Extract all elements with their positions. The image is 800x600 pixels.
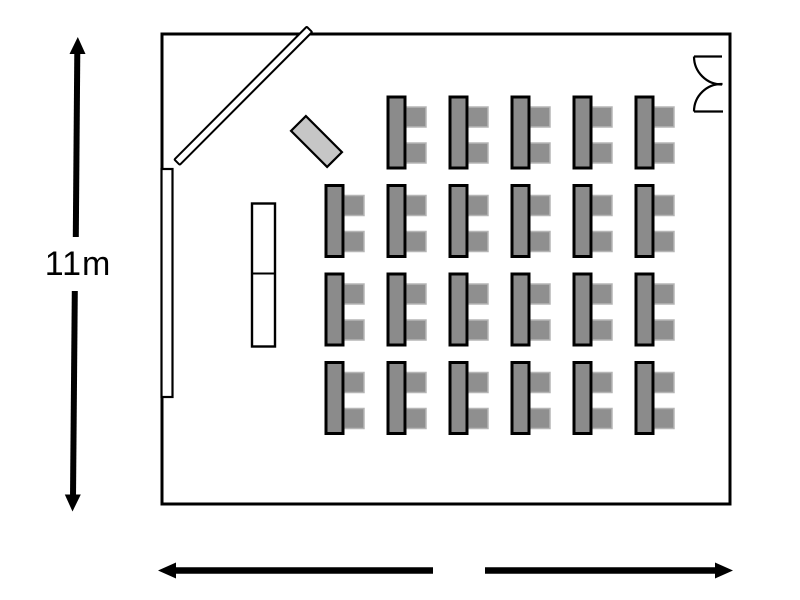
arrow-shaft-upper xyxy=(76,51,78,237)
chair xyxy=(344,409,364,429)
lectern xyxy=(252,204,275,347)
chair xyxy=(406,409,426,429)
desk xyxy=(636,363,653,434)
chair xyxy=(344,373,364,393)
chair xyxy=(468,232,488,252)
floor-plan-canvas: 11m xyxy=(0,0,800,600)
chair xyxy=(344,232,364,252)
desk xyxy=(574,274,591,345)
chair xyxy=(530,232,550,252)
chair xyxy=(406,320,426,340)
desk xyxy=(388,274,405,345)
arrow-down-head xyxy=(65,495,81,512)
desk xyxy=(326,186,343,257)
desk xyxy=(512,274,529,345)
chair xyxy=(344,320,364,340)
chair xyxy=(530,143,550,163)
chair xyxy=(530,284,550,304)
chair xyxy=(344,284,364,304)
chair xyxy=(654,232,674,252)
desk xyxy=(450,186,467,257)
chair xyxy=(654,284,674,304)
desk xyxy=(512,186,529,257)
desk xyxy=(388,97,405,168)
lectern-body xyxy=(252,204,275,347)
chair xyxy=(592,373,612,393)
chair xyxy=(592,284,612,304)
chair xyxy=(654,409,674,429)
chair xyxy=(654,196,674,216)
chair xyxy=(530,107,550,127)
desk xyxy=(450,97,467,168)
chair xyxy=(468,373,488,393)
desk xyxy=(512,363,529,434)
desk xyxy=(636,97,653,168)
chair xyxy=(406,143,426,163)
chair xyxy=(406,107,426,127)
chair xyxy=(654,320,674,340)
desk xyxy=(326,274,343,345)
chair xyxy=(530,320,550,340)
chair xyxy=(654,107,674,127)
width-dimension-arrow xyxy=(158,563,733,579)
chair xyxy=(468,107,488,127)
chair xyxy=(406,373,426,393)
desk xyxy=(326,363,343,434)
chair xyxy=(530,373,550,393)
desk xyxy=(512,97,529,168)
chair xyxy=(468,196,488,216)
chair xyxy=(406,232,426,252)
desk xyxy=(636,186,653,257)
chair xyxy=(468,143,488,163)
desk xyxy=(388,363,405,434)
chair xyxy=(592,409,612,429)
chair xyxy=(530,409,550,429)
room-depth-label: 11m xyxy=(22,247,134,281)
whiteboard xyxy=(162,169,173,397)
chair xyxy=(592,143,612,163)
chair xyxy=(406,196,426,216)
chair xyxy=(468,320,488,340)
desk xyxy=(574,363,591,434)
floor-plan-drawing xyxy=(0,0,800,600)
desk xyxy=(636,274,653,345)
chair xyxy=(654,143,674,163)
chair xyxy=(592,107,612,127)
arrow-shaft-lower xyxy=(73,291,75,497)
chair xyxy=(592,232,612,252)
chair xyxy=(530,196,550,216)
arrow-right-head xyxy=(715,563,733,579)
chair xyxy=(592,196,612,216)
chair xyxy=(406,284,426,304)
desk xyxy=(450,274,467,345)
desk xyxy=(450,363,467,434)
desk xyxy=(574,186,591,257)
chair xyxy=(468,284,488,304)
chair xyxy=(344,196,364,216)
chair xyxy=(654,373,674,393)
desk xyxy=(388,186,405,257)
chair xyxy=(592,320,612,340)
chair xyxy=(468,409,488,429)
desk xyxy=(574,97,591,168)
